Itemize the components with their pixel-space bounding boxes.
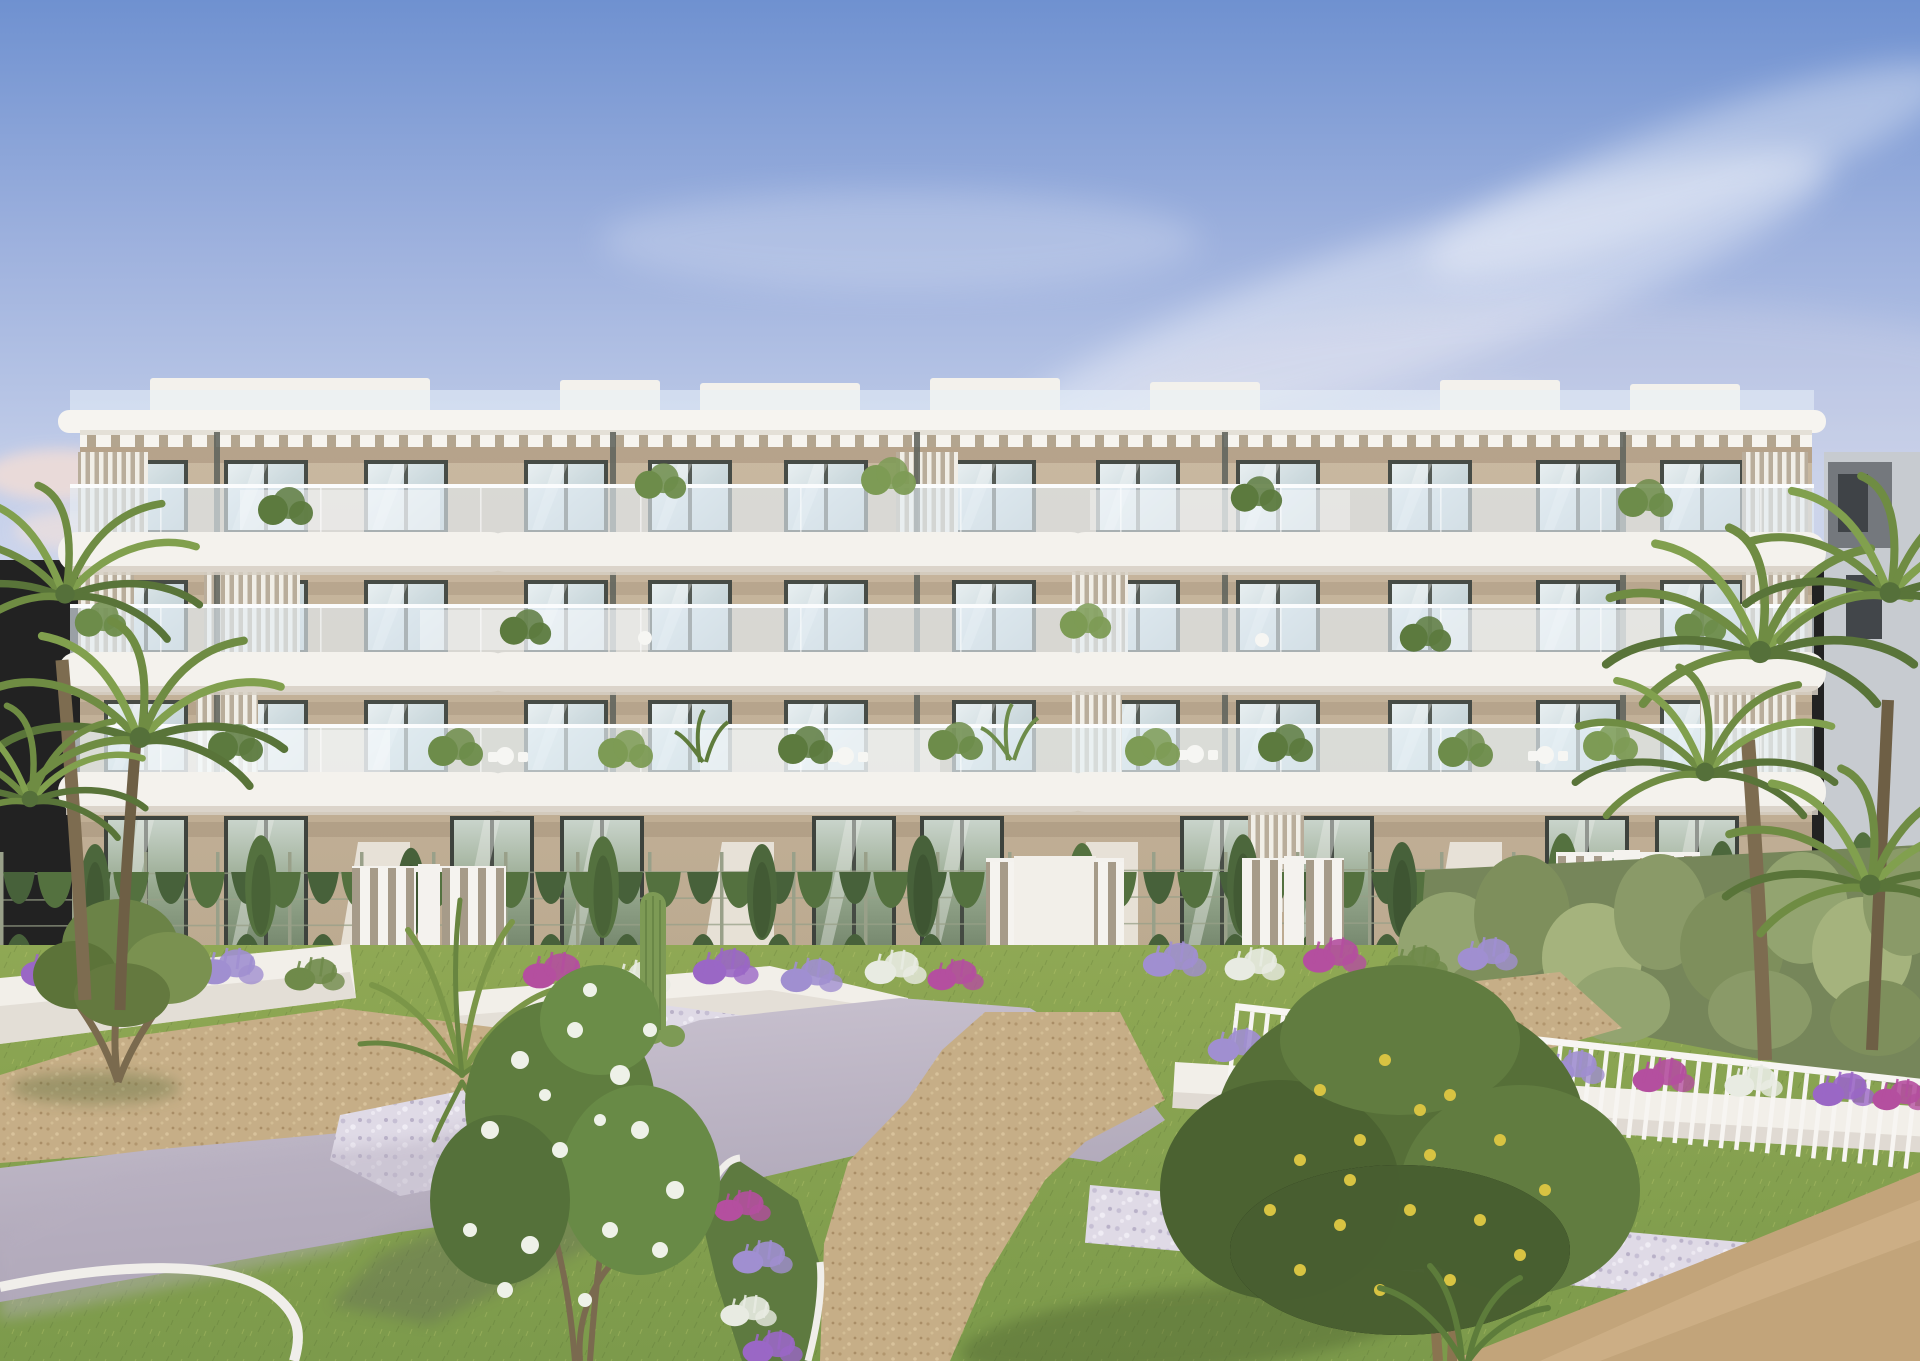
render-canvas [0, 0, 1920, 1361]
fascia-floor-2 [58, 652, 1826, 695]
glass-floor-2 [70, 604, 1814, 654]
glass-floor-3 [70, 484, 1814, 534]
fascia-floor-1 [58, 772, 1826, 815]
balcony-fascias [58, 532, 1826, 815]
fascia-floor-3 [58, 532, 1826, 575]
cloud-streak [600, 190, 1200, 290]
roof-slab [58, 410, 1826, 433]
gate-center-right [1242, 856, 1344, 956]
